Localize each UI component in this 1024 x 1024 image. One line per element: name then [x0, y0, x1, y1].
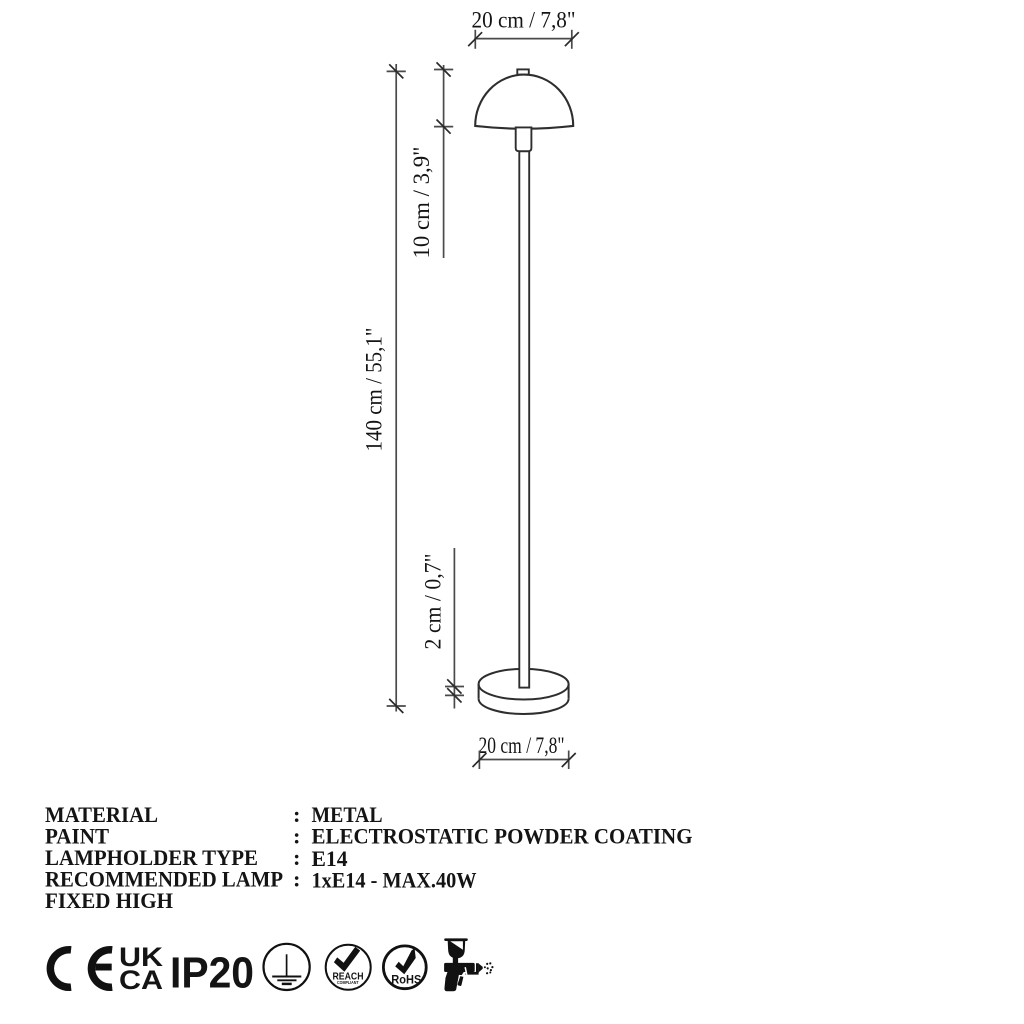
svg-text:20 cm / 7,8": 20 cm / 7,8" [472, 8, 576, 34]
svg-text:FIXED HIGH: FIXED HIGH [45, 888, 173, 913]
svg-text:ELECTROSTATIC POWDER COATING: ELECTROSTATIC POWDER COATING [312, 824, 693, 849]
svg-text:IP20: IP20 [170, 948, 254, 997]
svg-text::: : [293, 867, 301, 892]
svg-text:COMPLIANT: COMPLIANT [337, 980, 359, 985]
svg-text:20 cm / 7,8": 20 cm / 7,8" [479, 733, 565, 758]
svg-text:10 cm / 3,9": 10 cm / 3,9" [409, 147, 434, 259]
svg-text:RoHS: RoHS [391, 972, 421, 986]
svg-text:140 cm / 55,1": 140 cm / 55,1" [362, 328, 387, 452]
svg-text:2 cm / 0,7": 2 cm / 0,7" [420, 554, 445, 650]
svg-text:1xE14 - MAX.40W: 1xE14 - MAX.40W [312, 868, 477, 893]
svg-text:CA: CA [119, 965, 163, 995]
